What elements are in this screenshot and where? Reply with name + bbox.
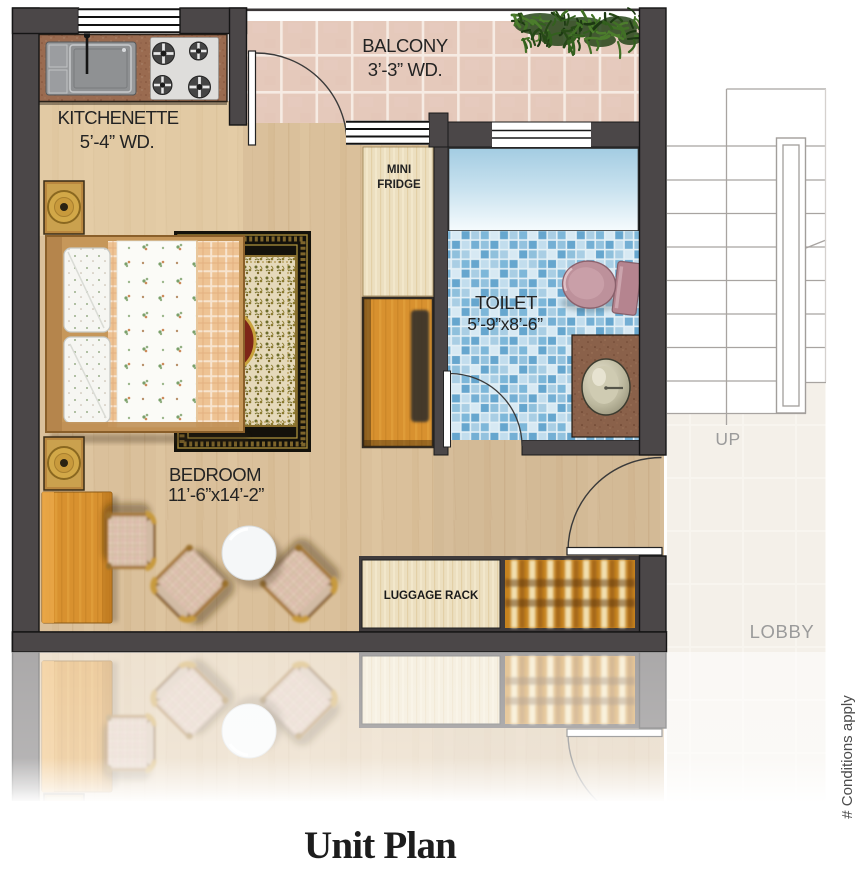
svg-text:Unit Plan: Unit Plan [304,824,457,867]
svg-text:TOILET: TOILET [475,292,537,313]
svg-text:# Conditions apply: # Conditions apply [839,695,856,819]
svg-text:11’-6”x14’-2”: 11’-6”x14’-2” [168,484,264,505]
svg-text:3’-3” WD.: 3’-3” WD. [368,59,443,80]
svg-text:UP: UP [715,429,740,449]
svg-text:BEDROOM: BEDROOM [169,464,261,485]
svg-text:KITCHENETTE: KITCHENETTE [58,107,179,128]
svg-text:LOBBY: LOBBY [750,621,815,642]
svg-text:FRIDGE: FRIDGE [377,179,421,191]
svg-text:5’-4” WD.: 5’-4” WD. [80,131,155,152]
svg-text:LUGGAGE RACK: LUGGAGE RACK [384,590,479,602]
svg-text:5’-9”x8’-6”: 5’-9”x8’-6” [467,314,543,334]
svg-text:MINI: MINI [387,164,411,176]
svg-text:BALCONY: BALCONY [362,35,448,56]
